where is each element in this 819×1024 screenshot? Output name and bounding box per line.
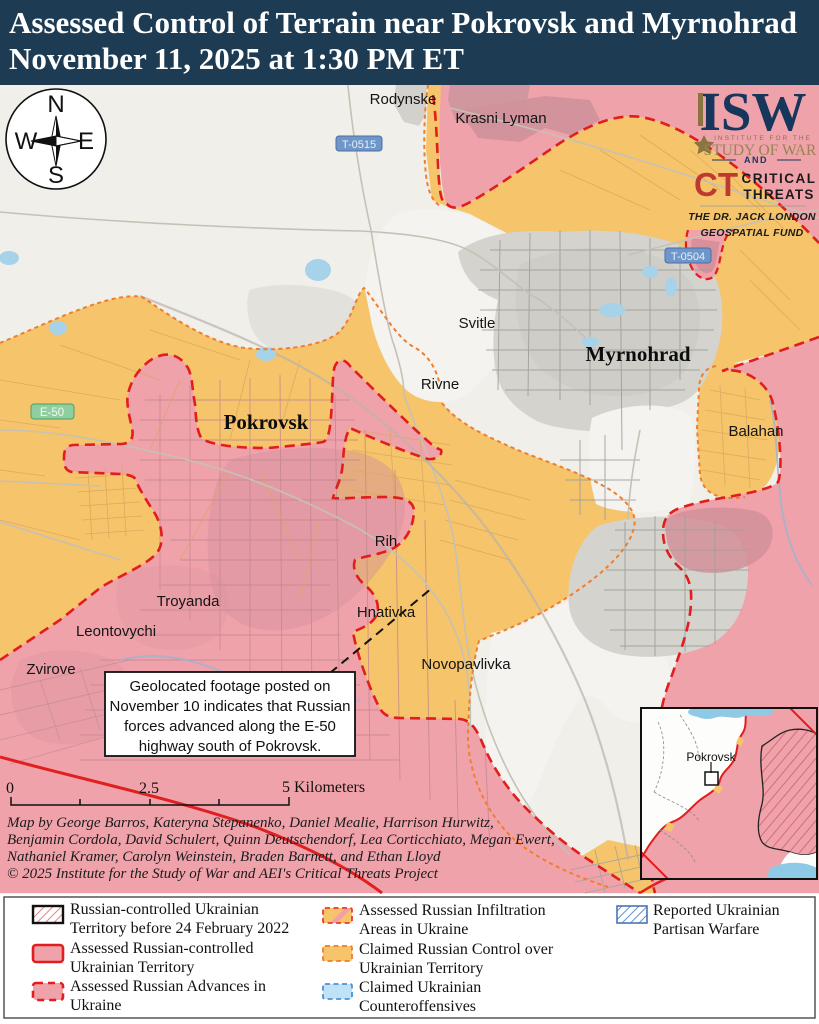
svg-text:Russian-controlled Ukrainian: Russian-controlled Ukrainian [70, 901, 259, 918]
svg-text:Ukrainian Territory: Ukrainian Territory [359, 960, 483, 977]
svg-text:Territory before 24 February 2: Territory before 24 February 2022 [70, 920, 289, 937]
svg-text:Reported Ukrainian: Reported Ukrainian [653, 902, 780, 919]
svg-text:Assessed Russian Infiltration: Assessed Russian Infiltration [359, 902, 546, 919]
svg-text:Areas in Ukraine: Areas in Ukraine [359, 921, 468, 938]
svg-text:Ukraine: Ukraine [70, 997, 122, 1014]
svg-text:Counteroffensives: Counteroffensives [359, 998, 476, 1015]
svg-text:Partisan Warfare: Partisan Warfare [653, 921, 759, 938]
svg-text:Assessed Russian Advances in: Assessed Russian Advances in [70, 978, 266, 995]
svg-text:Assessed Russian-controlled: Assessed Russian-controlled [70, 940, 254, 957]
svg-text:Ukrainian Territory: Ukrainian Territory [70, 959, 194, 976]
svg-text:Claimed Russian Control over: Claimed Russian Control over [359, 941, 554, 958]
svg-text:Claimed Ukrainian: Claimed Ukrainian [359, 979, 481, 996]
